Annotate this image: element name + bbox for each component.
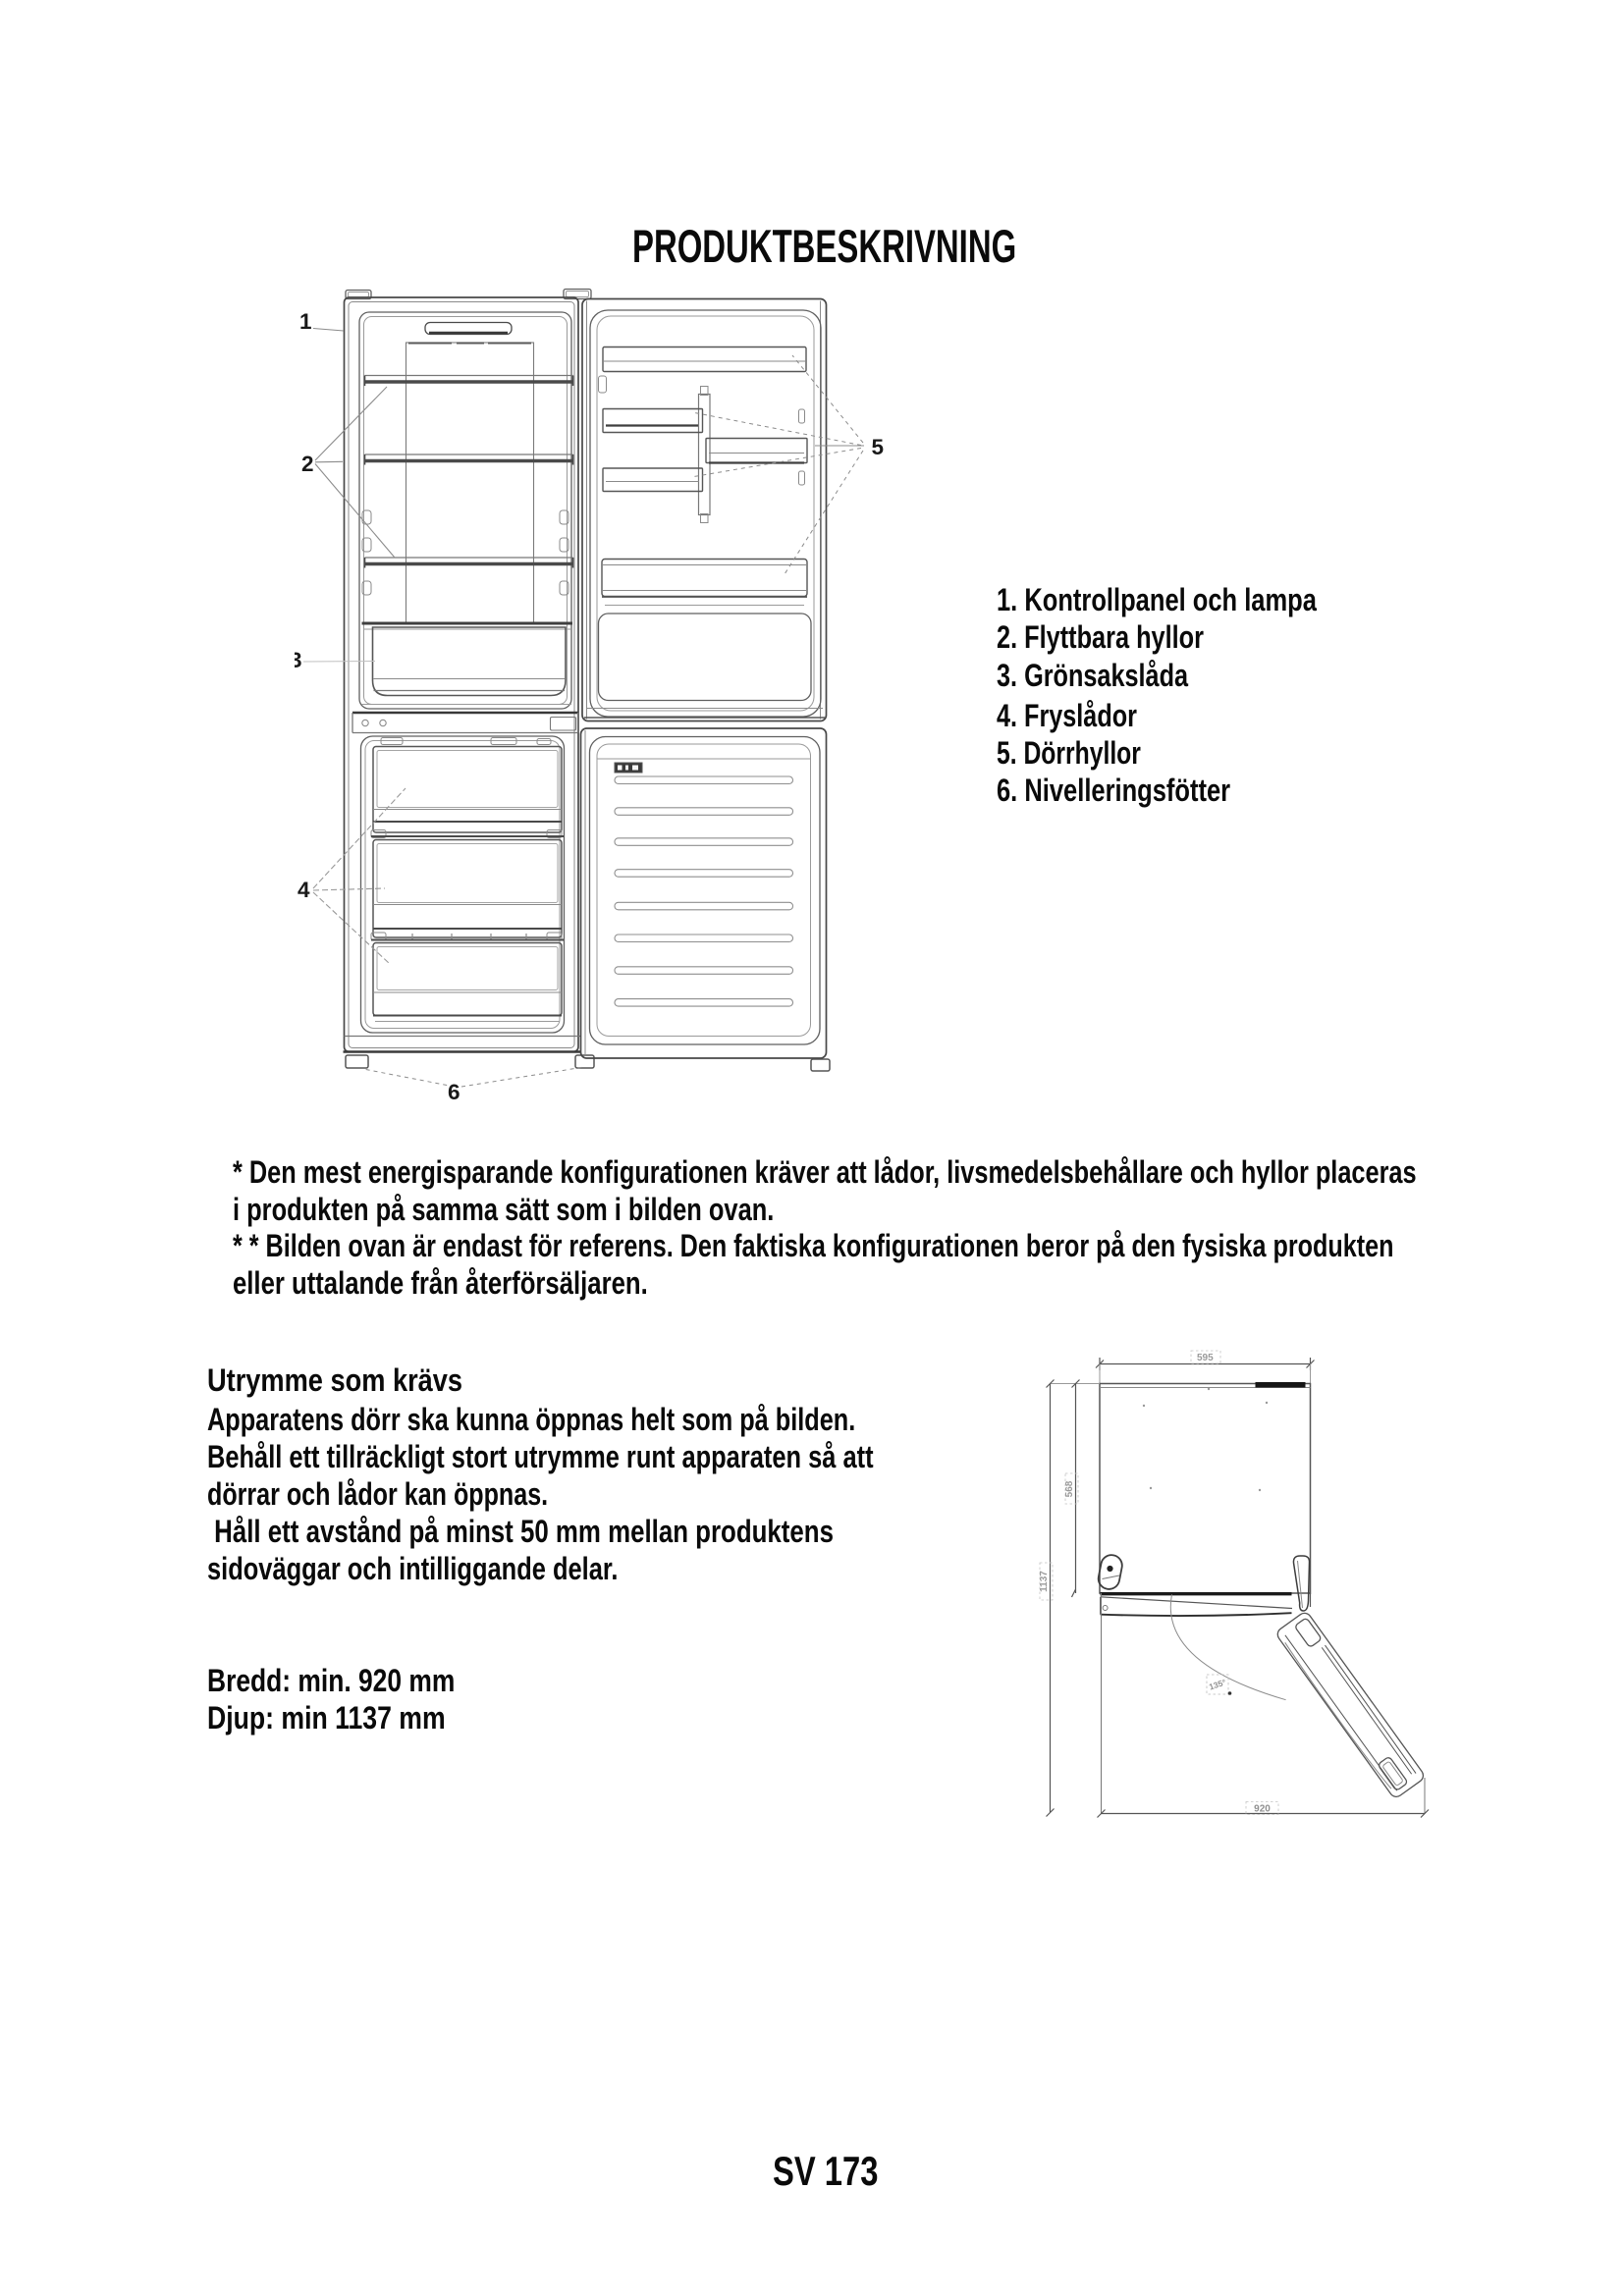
svg-text:1: 1 xyxy=(299,309,312,334)
svg-text:135°: 135° xyxy=(1208,1677,1227,1691)
svg-text:3: 3 xyxy=(295,648,302,672)
svg-text:5: 5 xyxy=(872,435,885,459)
svg-text:6: 6 xyxy=(448,1080,460,1104)
svg-text:2: 2 xyxy=(301,452,314,476)
svg-text:595: 595 xyxy=(1197,1353,1214,1363)
svg-text:920: 920 xyxy=(1254,1804,1271,1815)
svg-text:568: 568 xyxy=(1064,1480,1075,1497)
svg-text:4: 4 xyxy=(298,878,310,902)
svg-text:1137: 1137 xyxy=(1039,1571,1050,1592)
